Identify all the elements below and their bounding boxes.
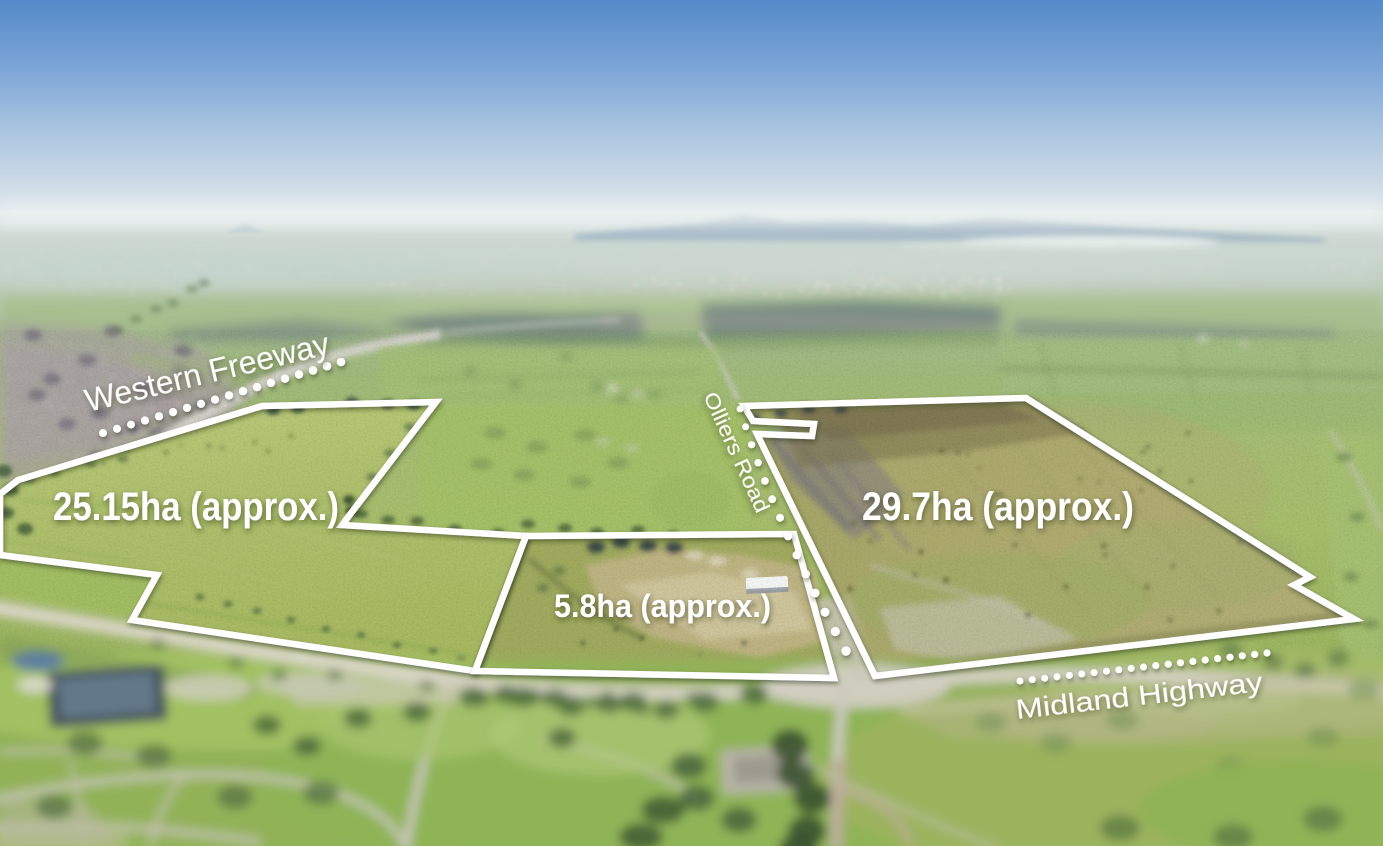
svg-text:29.7ha (approx.): 29.7ha (approx.): [862, 485, 1134, 529]
svg-text:5.8ha (approx.): 5.8ha (approx.): [554, 588, 771, 624]
svg-text:25.15ha (approx.): 25.15ha (approx.): [53, 485, 339, 529]
